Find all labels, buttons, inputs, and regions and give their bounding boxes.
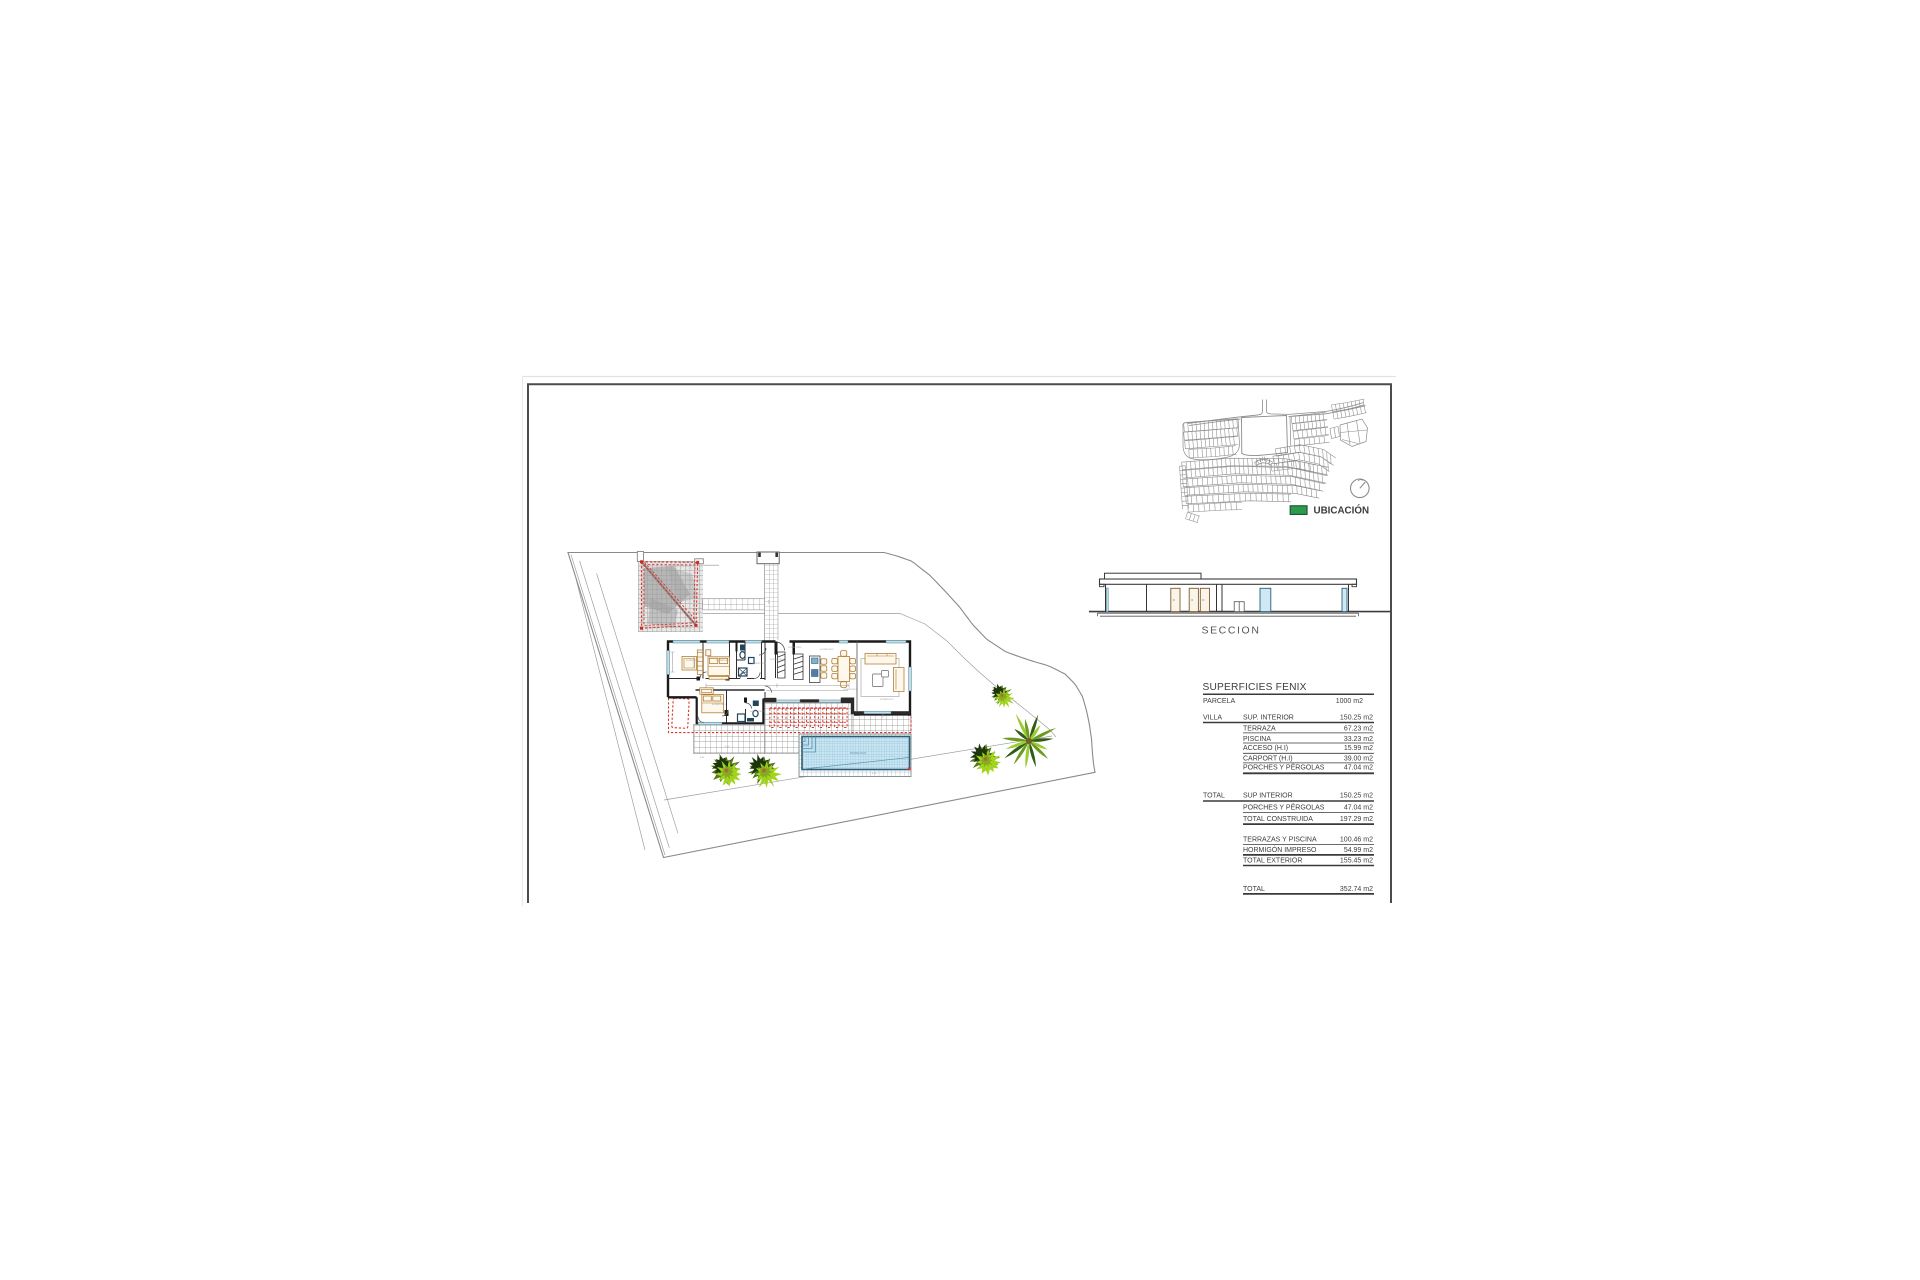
svg-text:DORMITORIO: DORMITORIO (820, 649, 834, 651)
svg-text:TOTAL CONSTRUIDA: TOTAL CONSTRUIDA (1243, 816, 1313, 823)
svg-text:DORMITORIO: DORMITORIO (788, 647, 802, 649)
svg-text:DORMITORIO: DORMITORIO (712, 704, 726, 706)
svg-text:33.23 m2: 33.23 m2 (1344, 736, 1373, 743)
svg-text:DORMITORIO: DORMITORIO (843, 689, 857, 691)
svg-text:39.00 m2: 39.00 m2 (1344, 755, 1373, 762)
svg-text:8.50: 8.50 (700, 757, 705, 759)
svg-text:ACCESO (H.I): ACCESO (H.I) (1243, 745, 1288, 752)
svg-text:47.04 m2: 47.04 m2 (1344, 764, 1373, 771)
svg-text:PISCINA 33.23: PISCINA 33.23 (850, 752, 867, 755)
svg-text:197.29 m2: 197.29 m2 (1340, 816, 1373, 823)
svg-text:TERRAZA: TERRAZA (1243, 726, 1276, 733)
svg-text:DORMITORIO: DORMITORIO (752, 663, 766, 665)
svg-text:TOTAL EXTERIOR: TOTAL EXTERIOR (1243, 857, 1302, 864)
svg-text:352.74 m2: 352.74 m2 (1340, 886, 1373, 893)
svg-text:CARPORT (H.I): CARPORT (H.I) (1243, 755, 1293, 762)
svg-text:TOTAL: TOTAL (1203, 793, 1225, 800)
svg-text:HORMIGÓN IMPRESO: HORMIGÓN IMPRESO (1243, 845, 1317, 854)
svg-text:UBICACIÓN: UBICACIÓN (1314, 505, 1370, 517)
svg-text:67.23 m2: 67.23 m2 (1344, 726, 1373, 733)
svg-text:150.25 m2: 150.25 m2 (1340, 793, 1373, 800)
svg-text:SUPERFICIES FENIX: SUPERFICIES FENIX (1203, 682, 1307, 693)
svg-text:54.99 m2: 54.99 m2 (1344, 847, 1373, 854)
svg-text:1000 m2: 1000 m2 (1336, 698, 1363, 705)
svg-text:PISCINA: PISCINA (1243, 736, 1271, 743)
svg-text:DORMITORIO: DORMITORIO (686, 660, 700, 662)
svg-text:DORMITORIO: DORMITORIO (880, 699, 894, 701)
svg-text:155.45 m2: 155.45 m2 (1340, 857, 1373, 864)
svg-text:DORMITORIO: DORMITORIO (750, 711, 764, 713)
svg-text:TERRAZAS Y PISCINA: TERRAZAS Y PISCINA (1243, 837, 1317, 844)
svg-text:DORMITORIO: DORMITORIO (770, 659, 784, 661)
svg-text:100.46 m2: 100.46 m2 (1340, 837, 1373, 844)
svg-text:150.25 m2: 150.25 m2 (1340, 715, 1373, 722)
svg-text:PORCHES Y PÉRGOLAS: PORCHES Y PÉRGOLAS (1243, 803, 1325, 812)
svg-text:SUP INTERIOR: SUP INTERIOR (1243, 793, 1293, 800)
svg-text:47.04 m2: 47.04 m2 (1344, 805, 1373, 812)
svg-text:VILLA: VILLA (1203, 715, 1222, 722)
svg-text:TOTAL: TOTAL (1243, 886, 1265, 893)
svg-text:PORCHES Y PÉRGOLAS: PORCHES Y PÉRGOLAS (1243, 762, 1325, 771)
svg-text:SECCION: SECCION (1201, 625, 1260, 637)
svg-text:SUP. INTERIOR: SUP. INTERIOR (1243, 715, 1294, 722)
svg-text:PARCELA: PARCELA (1203, 698, 1235, 705)
svg-text:DORMITORIO: DORMITORIO (716, 660, 730, 662)
svg-text:15.99 m2: 15.99 m2 (1344, 745, 1373, 752)
